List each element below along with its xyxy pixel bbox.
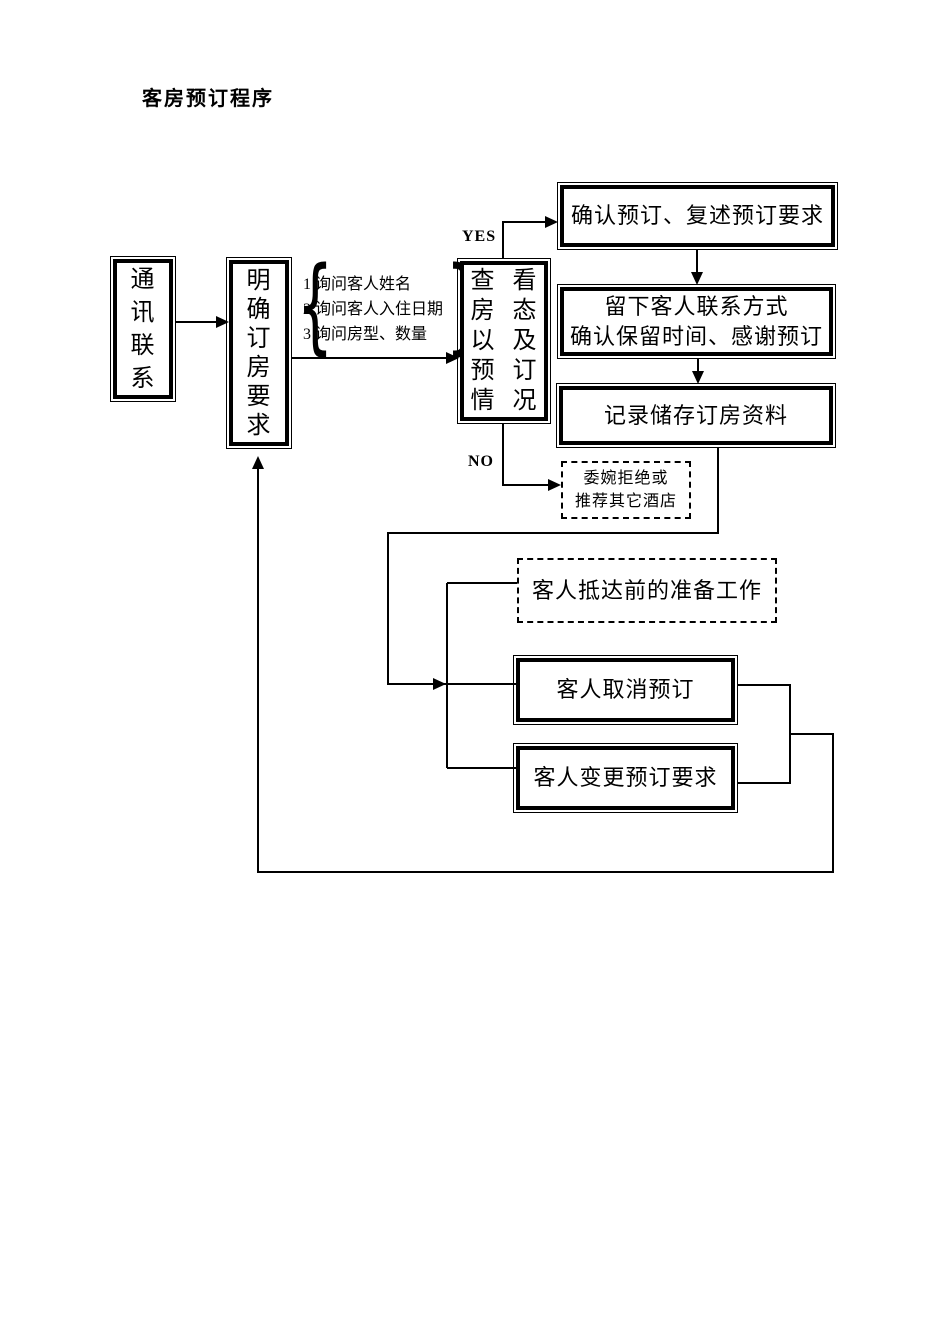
inquiry-item-1: 1 询问客人姓名: [303, 272, 443, 297]
arrowhead-into-clarify: [216, 316, 229, 328]
node-change: 客人变更预订要求: [516, 746, 735, 810]
node-cancel: 客人取消预订: [516, 658, 735, 722]
inquiry-list: 1 询问客人姓名 2 询问客人入住日期 3 询问房型、数量: [303, 272, 443, 347]
node-record-label: 记录储存订房资料: [604, 401, 788, 431]
node-cancel-label: 客人取消预订: [556, 675, 694, 705]
inquiry-item-3: 3 询问房型、数量: [303, 322, 443, 347]
node-confirm: 确认预订、复述预订要求: [560, 185, 835, 247]
node-change-label: 客人变更预订要求: [533, 763, 717, 793]
arrowhead-into-keepcontact: [691, 272, 703, 285]
arrowhead-return-into-clarify: [252, 456, 264, 469]
yes-label: YES: [462, 228, 496, 246]
arrowhead-into-decline: [548, 479, 561, 491]
node-check-status-col1: 查房以预情: [469, 266, 497, 416]
node-contact: 通讯联系: [113, 259, 173, 399]
node-check-status-col2: 看态及订况: [511, 266, 539, 416]
node-decline: 委婉拒绝或 推荐其它酒店: [561, 461, 691, 519]
arrowhead-into-followup-spine: [433, 678, 446, 690]
node-decline-line1: 委婉拒绝或: [583, 467, 668, 490]
connector-no-branch: [503, 424, 552, 485]
node-prepare-label: 客人抵达前的准备工作: [532, 576, 762, 606]
page-title: 客房预订程序: [142, 82, 274, 111]
node-keep-contact-line1: 留下客人联系方式: [604, 292, 788, 322]
no-label: NO: [468, 453, 494, 471]
node-prepare: 客人抵达前的准备工作: [517, 558, 777, 623]
flowchart-page: 客房预订程序 通讯联系 明确订房要求 { } 1 询问客人姓名 2 询问客人入住…: [0, 0, 950, 1344]
node-clarify-label: 明确订房要求: [245, 266, 273, 440]
arrowhead-into-confirm: [545, 216, 558, 228]
node-record: 记录储存订房资料: [559, 386, 833, 445]
node-confirm-label: 确认预订、复述预订要求: [571, 201, 824, 231]
node-check-status: 查房以预情 看态及订况: [460, 261, 548, 421]
node-contact-label: 通讯联系: [129, 263, 157, 395]
connector-yes-branch: [503, 222, 548, 258]
node-keep-contact-line2: 确认保留时间、感谢预订: [570, 322, 823, 352]
node-clarify: 明确订房要求: [229, 260, 289, 446]
connector-cancel-change-merge: [738, 685, 790, 783]
node-decline-line2: 推荐其它酒店: [575, 490, 677, 513]
arrowhead-into-record: [692, 371, 704, 384]
node-keep-contact: 留下客人联系方式 确认保留时间、感谢预订: [560, 287, 833, 356]
inquiry-item-2: 2 询问客人入住日期: [303, 297, 443, 322]
